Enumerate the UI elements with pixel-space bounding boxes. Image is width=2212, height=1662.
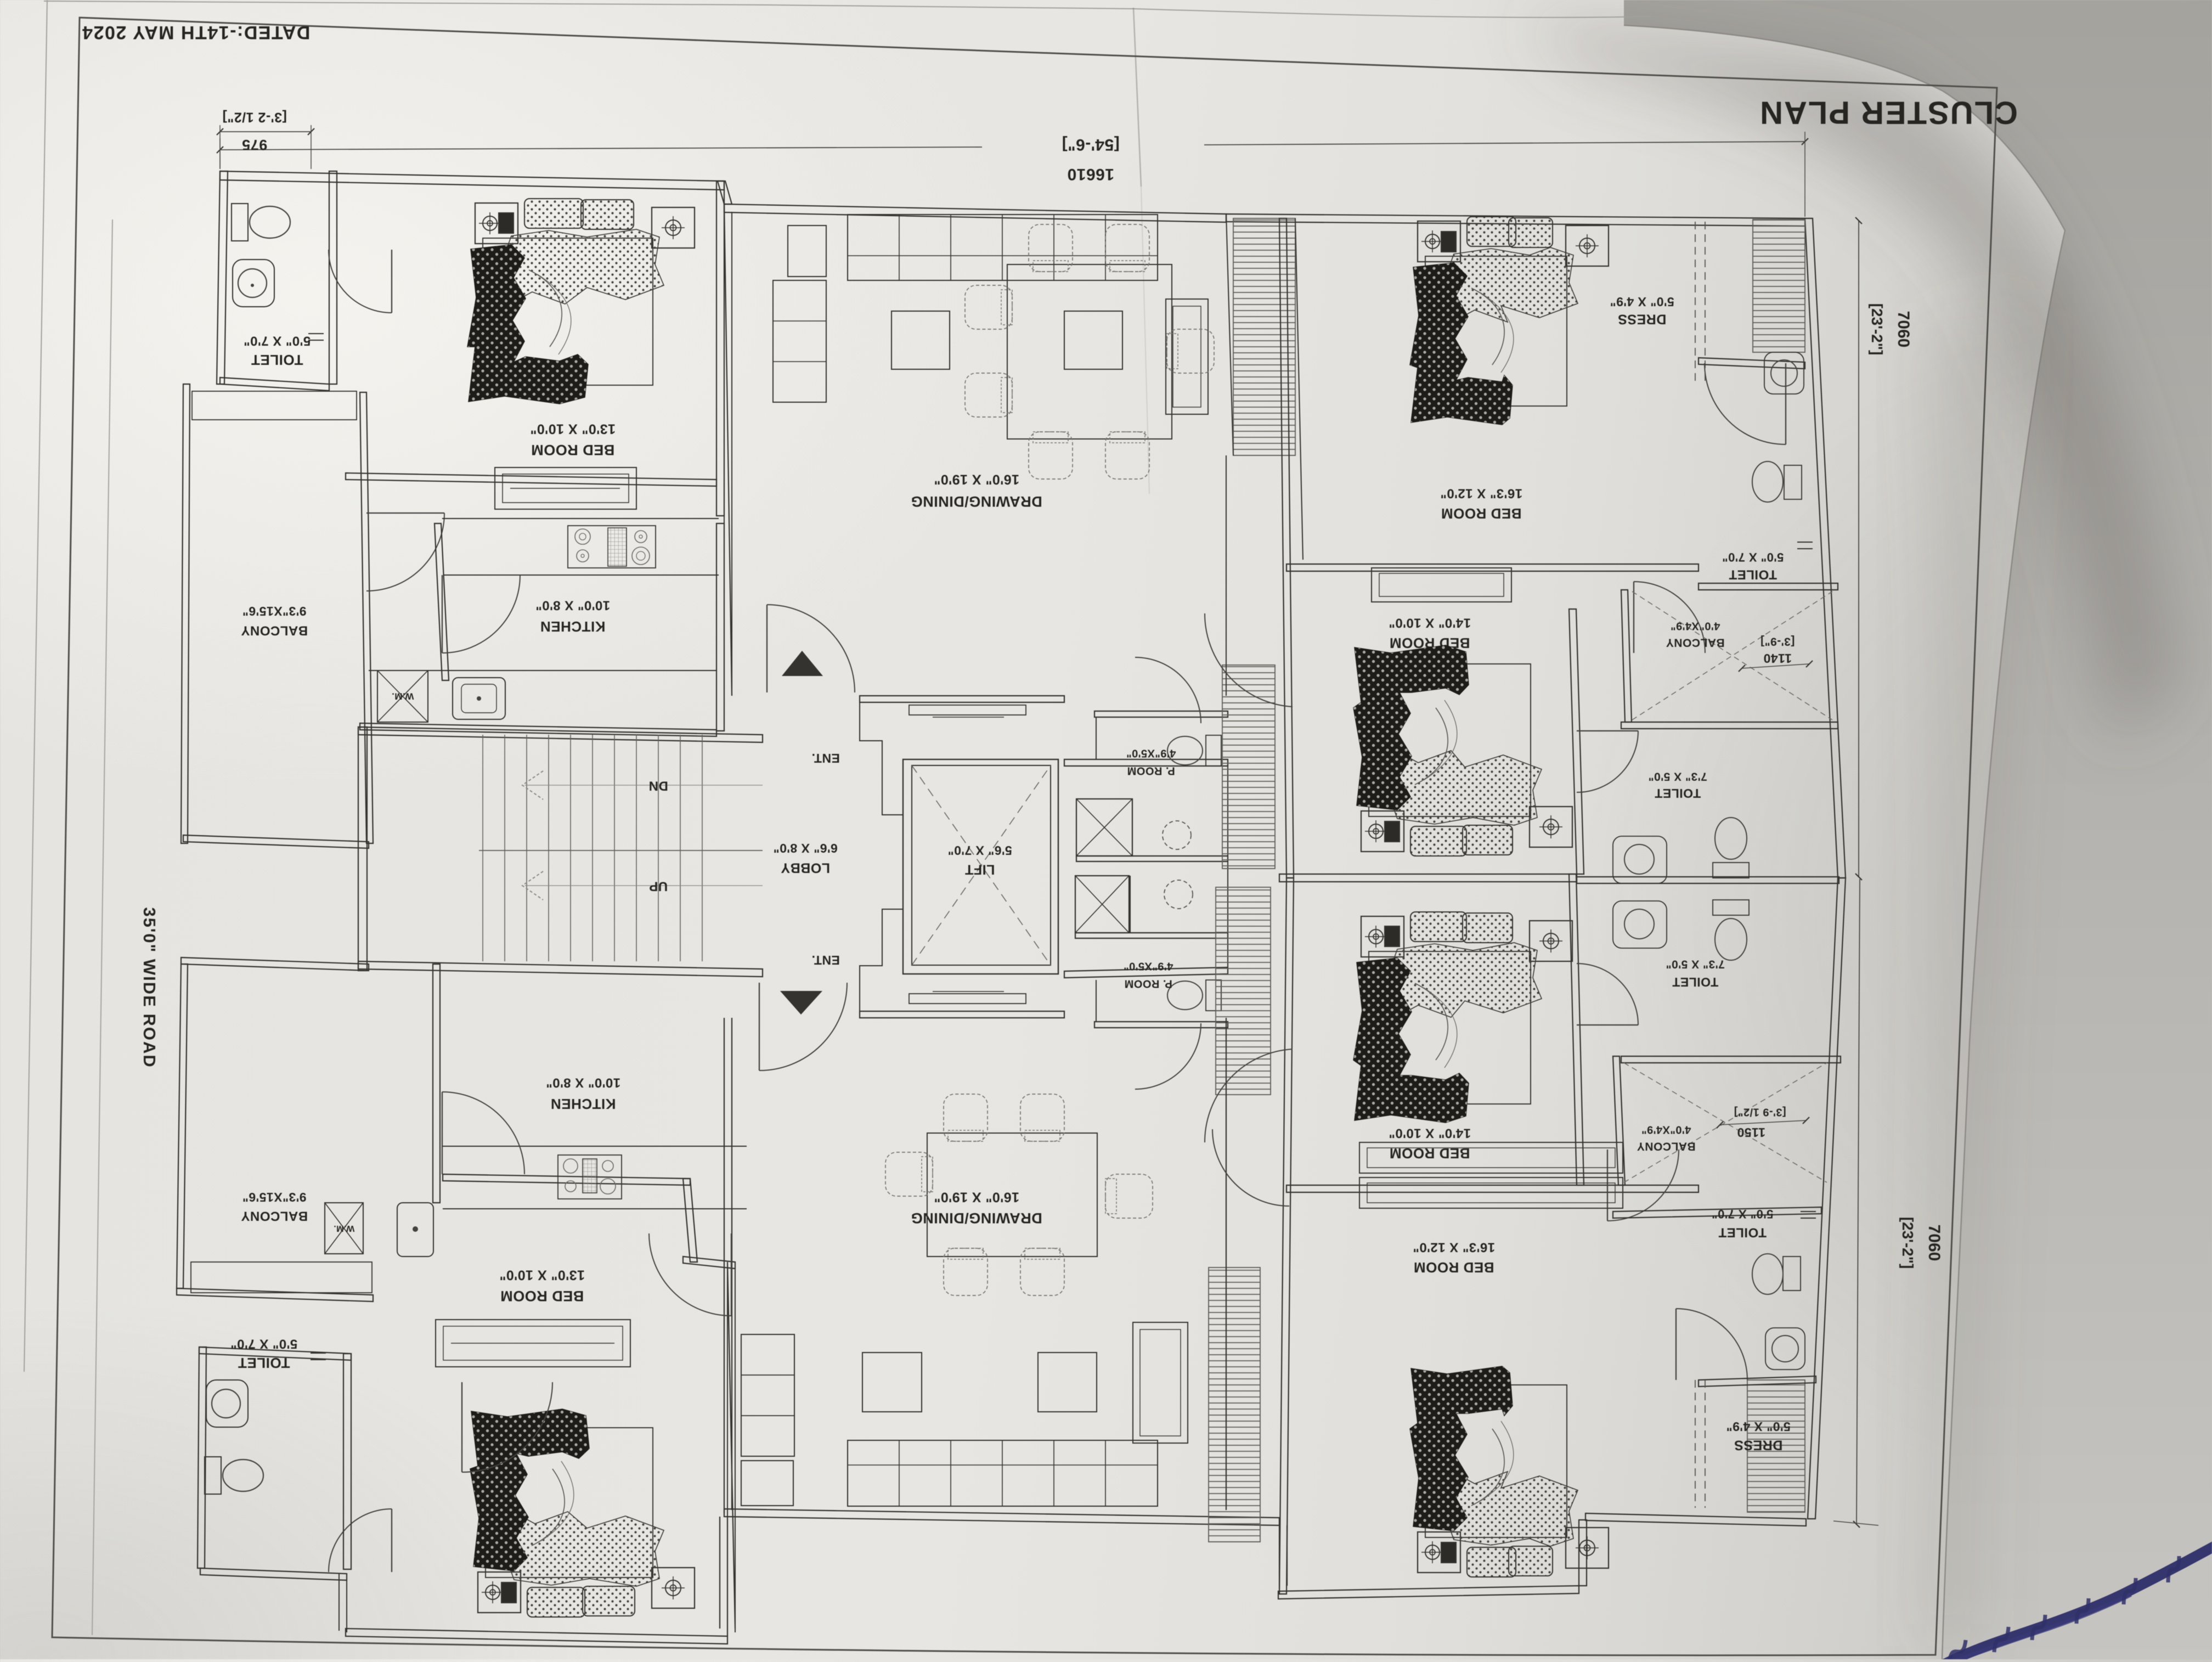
svg-text:4'9"X5'0": 4'9"X5'0" [1126, 747, 1176, 759]
svg-text:KITCHEN: KITCHEN [540, 618, 605, 635]
svg-text:TOILET: TOILET [1672, 975, 1718, 989]
svg-text:5'0" X 7'0": 5'0" X 7'0" [1712, 1207, 1774, 1221]
svg-text:[54'-6"]: [54'-6"] [1062, 136, 1119, 154]
svg-text:UP: UP [649, 879, 668, 894]
svg-text:LIFT: LIFT [965, 861, 995, 877]
svg-text:1150: 1150 [1737, 1125, 1765, 1140]
svg-text:10'0" X 8'0": 10'0" X 8'0" [535, 598, 610, 613]
svg-text:LOBBY: LOBBY [781, 860, 830, 875]
svg-text:4'9"X5'0": 4'9"X5'0" [1124, 960, 1173, 972]
svg-text:TOILET: TOILET [1729, 567, 1777, 582]
svg-text:DRAWING/DINING: DRAWING/DINING [911, 1210, 1042, 1226]
svg-text:5'0" X 7'0": 5'0" X 7'0" [1722, 550, 1784, 564]
svg-text:[3'-9"]: [3'-9"] [1760, 635, 1795, 647]
svg-text:W.M.: W.M. [392, 691, 414, 702]
svg-text:ENT.: ENT. [811, 751, 840, 765]
svg-text:7'3" X 5'0": 7'3" X 5'0" [1648, 770, 1707, 782]
svg-text:5'0" X 7'0": 5'0" X 7'0" [230, 1337, 297, 1351]
svg-text:6'6" X 8'0": 6'6" X 8'0" [773, 841, 838, 855]
svg-text:BALCONY: BALCONY [1637, 1140, 1695, 1152]
svg-text:BALCONY: BALCONY [241, 1209, 308, 1224]
svg-text:TOILET: TOILET [1718, 1225, 1767, 1240]
svg-text:[3'-2 1/2"]: [3'-2 1/2"] [222, 109, 287, 125]
svg-text:975: 975 [242, 137, 268, 153]
svg-text:14'0" X 10'0": 14'0" X 10'0" [1389, 1126, 1471, 1141]
svg-text:5'6" X 7'0": 5'6" X 7'0" [947, 843, 1012, 858]
svg-text:TOILET: TOILET [1655, 786, 1701, 801]
svg-text:9'3"X15'6": 9'3"X15'6" [242, 604, 306, 618]
svg-text:P. ROOM: P. ROOM [1127, 765, 1175, 777]
svg-text:16'0" X 19'0": 16'0" X 19'0" [934, 1189, 1019, 1204]
svg-text:9'3"X15'6": 9'3"X15'6" [242, 1190, 306, 1204]
svg-text:DN: DN [648, 779, 668, 793]
svg-text:16'0" X 19'0": 16'0" X 19'0" [934, 471, 1019, 487]
svg-text:7'3" X 5'0": 7'3" X 5'0" [1666, 957, 1725, 970]
svg-text:5'0" X 4'9": 5'0" X 4'9" [1610, 295, 1674, 309]
svg-text:DATED:-14TH MAY 2024: DATED:-14TH MAY 2024 [82, 22, 311, 43]
svg-text:[3'-9 1/2"]: [3'-9 1/2"] [1734, 1106, 1786, 1118]
svg-text:DRESS: DRESS [1734, 1437, 1783, 1452]
svg-text:DRAWING/DINING: DRAWING/DINING [911, 493, 1042, 510]
svg-text:ENT.: ENT. [811, 953, 840, 967]
svg-text:BALCONY: BALCONY [241, 623, 308, 638]
svg-text:KITCHEN: KITCHEN [550, 1096, 616, 1112]
svg-text:DRESS: DRESS [1618, 311, 1667, 326]
svg-text:4'0"X4'9": 4'0"X4'9" [1641, 1124, 1691, 1136]
svg-text:13'0" X 10'0": 13'0" X 10'0" [499, 1267, 585, 1282]
svg-text:5'0" X 7'0": 5'0" X 7'0" [244, 334, 311, 348]
svg-text:4'0"X4'9": 4'0"X4'9" [1671, 620, 1720, 632]
svg-text:BED ROOM: BED ROOM [531, 442, 615, 458]
svg-text:35'0" WIDE ROAD: 35'0" WIDE ROAD [140, 907, 159, 1068]
svg-text:W.M.: W.M. [334, 1224, 354, 1233]
svg-text:TOILET: TOILET [238, 1355, 290, 1371]
svg-text:7060: 7060 [1925, 1225, 1943, 1261]
svg-text:TOILET: TOILET [251, 352, 303, 368]
svg-text:16610: 16610 [1067, 165, 1114, 183]
svg-text:P. ROOM: P. ROOM [1124, 978, 1172, 990]
svg-text:14'0" X 10'0": 14'0" X 10'0" [1389, 616, 1471, 630]
svg-text:1140: 1140 [1763, 651, 1792, 666]
svg-text:16'3" X 12'0": 16'3" X 12'0" [1440, 486, 1522, 501]
svg-text:7060: 7060 [1894, 311, 1912, 348]
svg-text:13'0" X 10'0": 13'0" X 10'0" [530, 421, 616, 436]
svg-text:BED ROOM: BED ROOM [1441, 505, 1522, 522]
svg-text:BED ROOM: BED ROOM [1414, 1259, 1494, 1276]
svg-text:[23'-2"]: [23'-2"] [1899, 1217, 1916, 1269]
svg-text:CLUSTER PLAN: CLUSTER PLAN [1759, 95, 2018, 131]
svg-text:16'3" X 12'0": 16'3" X 12'0" [1413, 1240, 1495, 1255]
svg-text:10'0" X 8'0": 10'0" X 8'0" [546, 1075, 620, 1090]
svg-text:5'0" X 4'9": 5'0" X 4'9" [1726, 1419, 1791, 1434]
svg-text:[23'-2"]: [23'-2"] [1869, 303, 1886, 356]
svg-text:BALCONY: BALCONY [1666, 636, 1724, 649]
svg-text:BED ROOM: BED ROOM [500, 1288, 584, 1304]
